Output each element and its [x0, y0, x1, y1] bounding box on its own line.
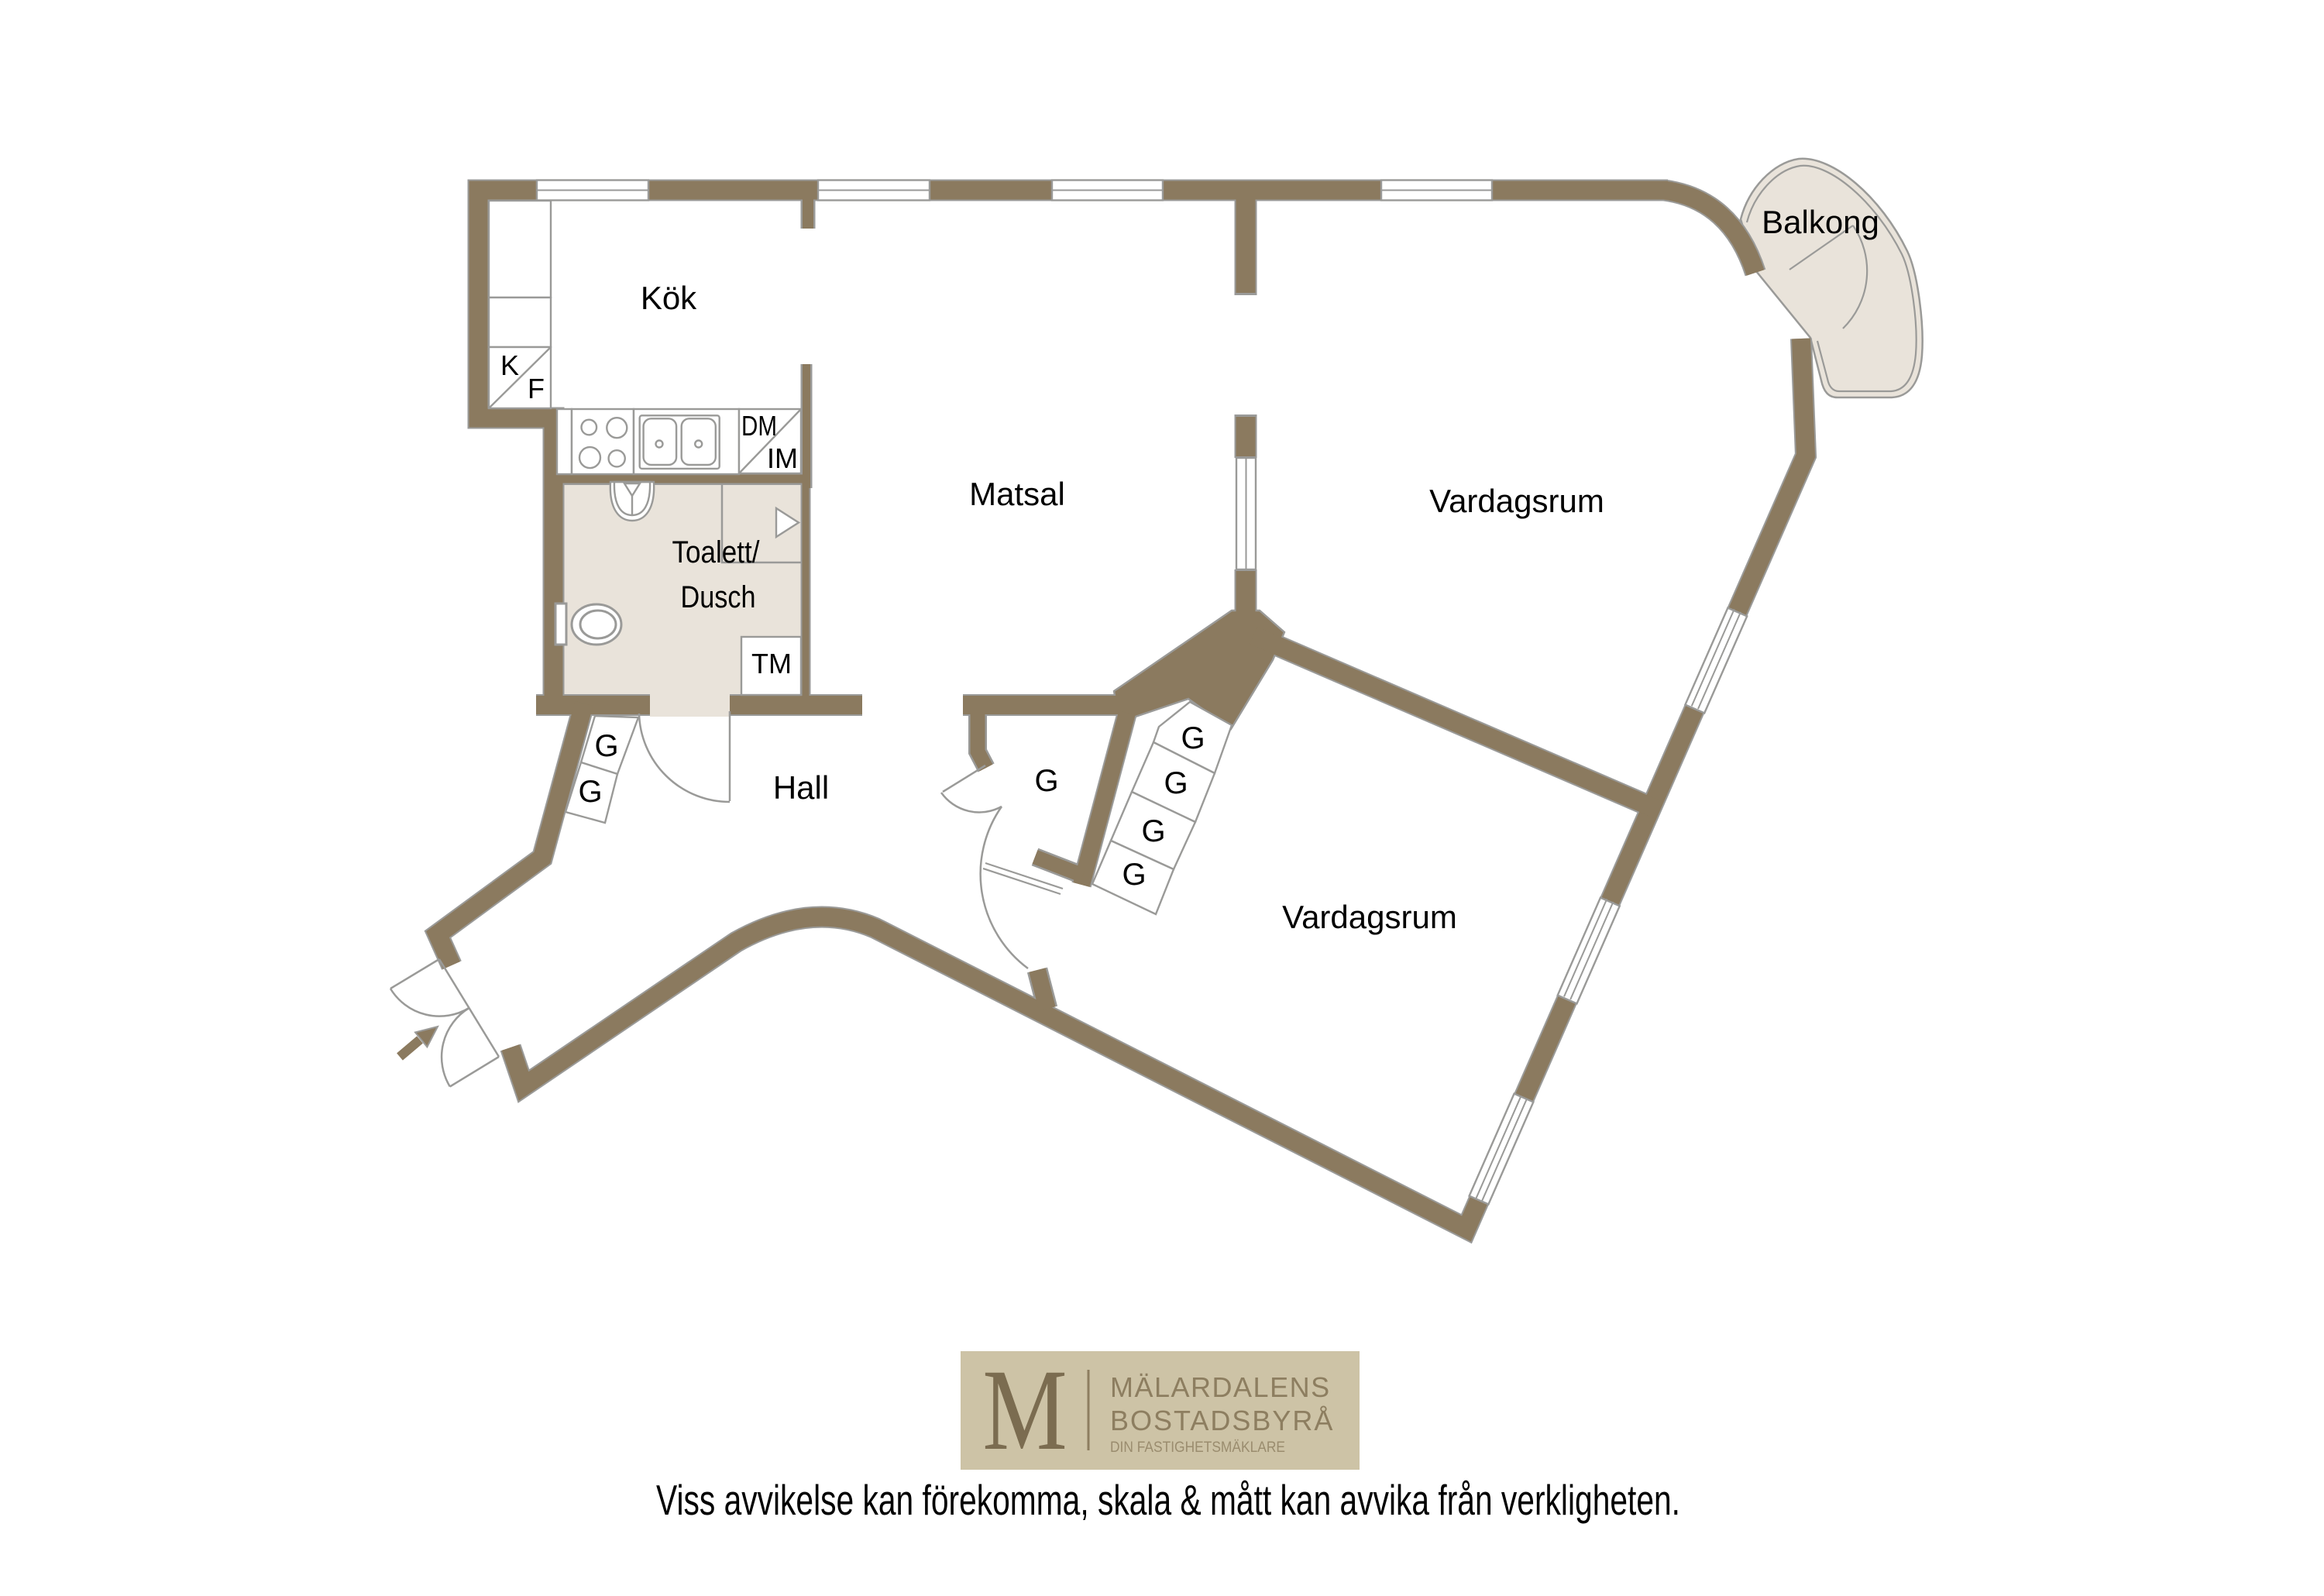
svg-text:M: M [982, 1346, 1067, 1474]
svg-text:DM: DM [741, 410, 777, 442]
svg-text:Vardagsrum: Vardagsrum [1429, 483, 1604, 519]
svg-text:DIN FASTIGHETSMÄKLARE: DIN FASTIGHETSMÄKLARE [1110, 1439, 1285, 1456]
svg-text:K: K [500, 349, 519, 381]
svg-text:Kök: Kök [641, 280, 697, 316]
svg-text:IM: IM [767, 442, 798, 474]
svg-text:Matsal: Matsal [969, 476, 1065, 512]
svg-text:G: G [1181, 721, 1205, 755]
svg-text:TM: TM [751, 648, 792, 679]
svg-text:F: F [528, 373, 545, 404]
svg-text:G: G [1141, 814, 1165, 848]
svg-text:Toalett/: Toalett/ [672, 535, 761, 569]
svg-text:Viss avvikelse kan förekomma,: Viss avvikelse kan förekomma, skala & må… [656, 1476, 1680, 1524]
svg-text:G: G [1164, 766, 1188, 800]
svg-text:G: G [1122, 858, 1146, 892]
svg-text:BOSTADSBYRÅ: BOSTADSBYRÅ [1110, 1405, 1334, 1436]
svg-text:G: G [594, 729, 618, 763]
svg-text:Balkong: Balkong [1762, 204, 1879, 240]
svg-text:MÄLARDALENS: MÄLARDALENS [1110, 1371, 1331, 1403]
svg-text:G: G [1034, 764, 1058, 798]
svg-text:Dusch: Dusch [681, 580, 756, 614]
svg-text:G: G [578, 775, 602, 809]
svg-text:Vardagsrum: Vardagsrum [1282, 899, 1457, 935]
svg-text:Hall: Hall [773, 769, 829, 806]
